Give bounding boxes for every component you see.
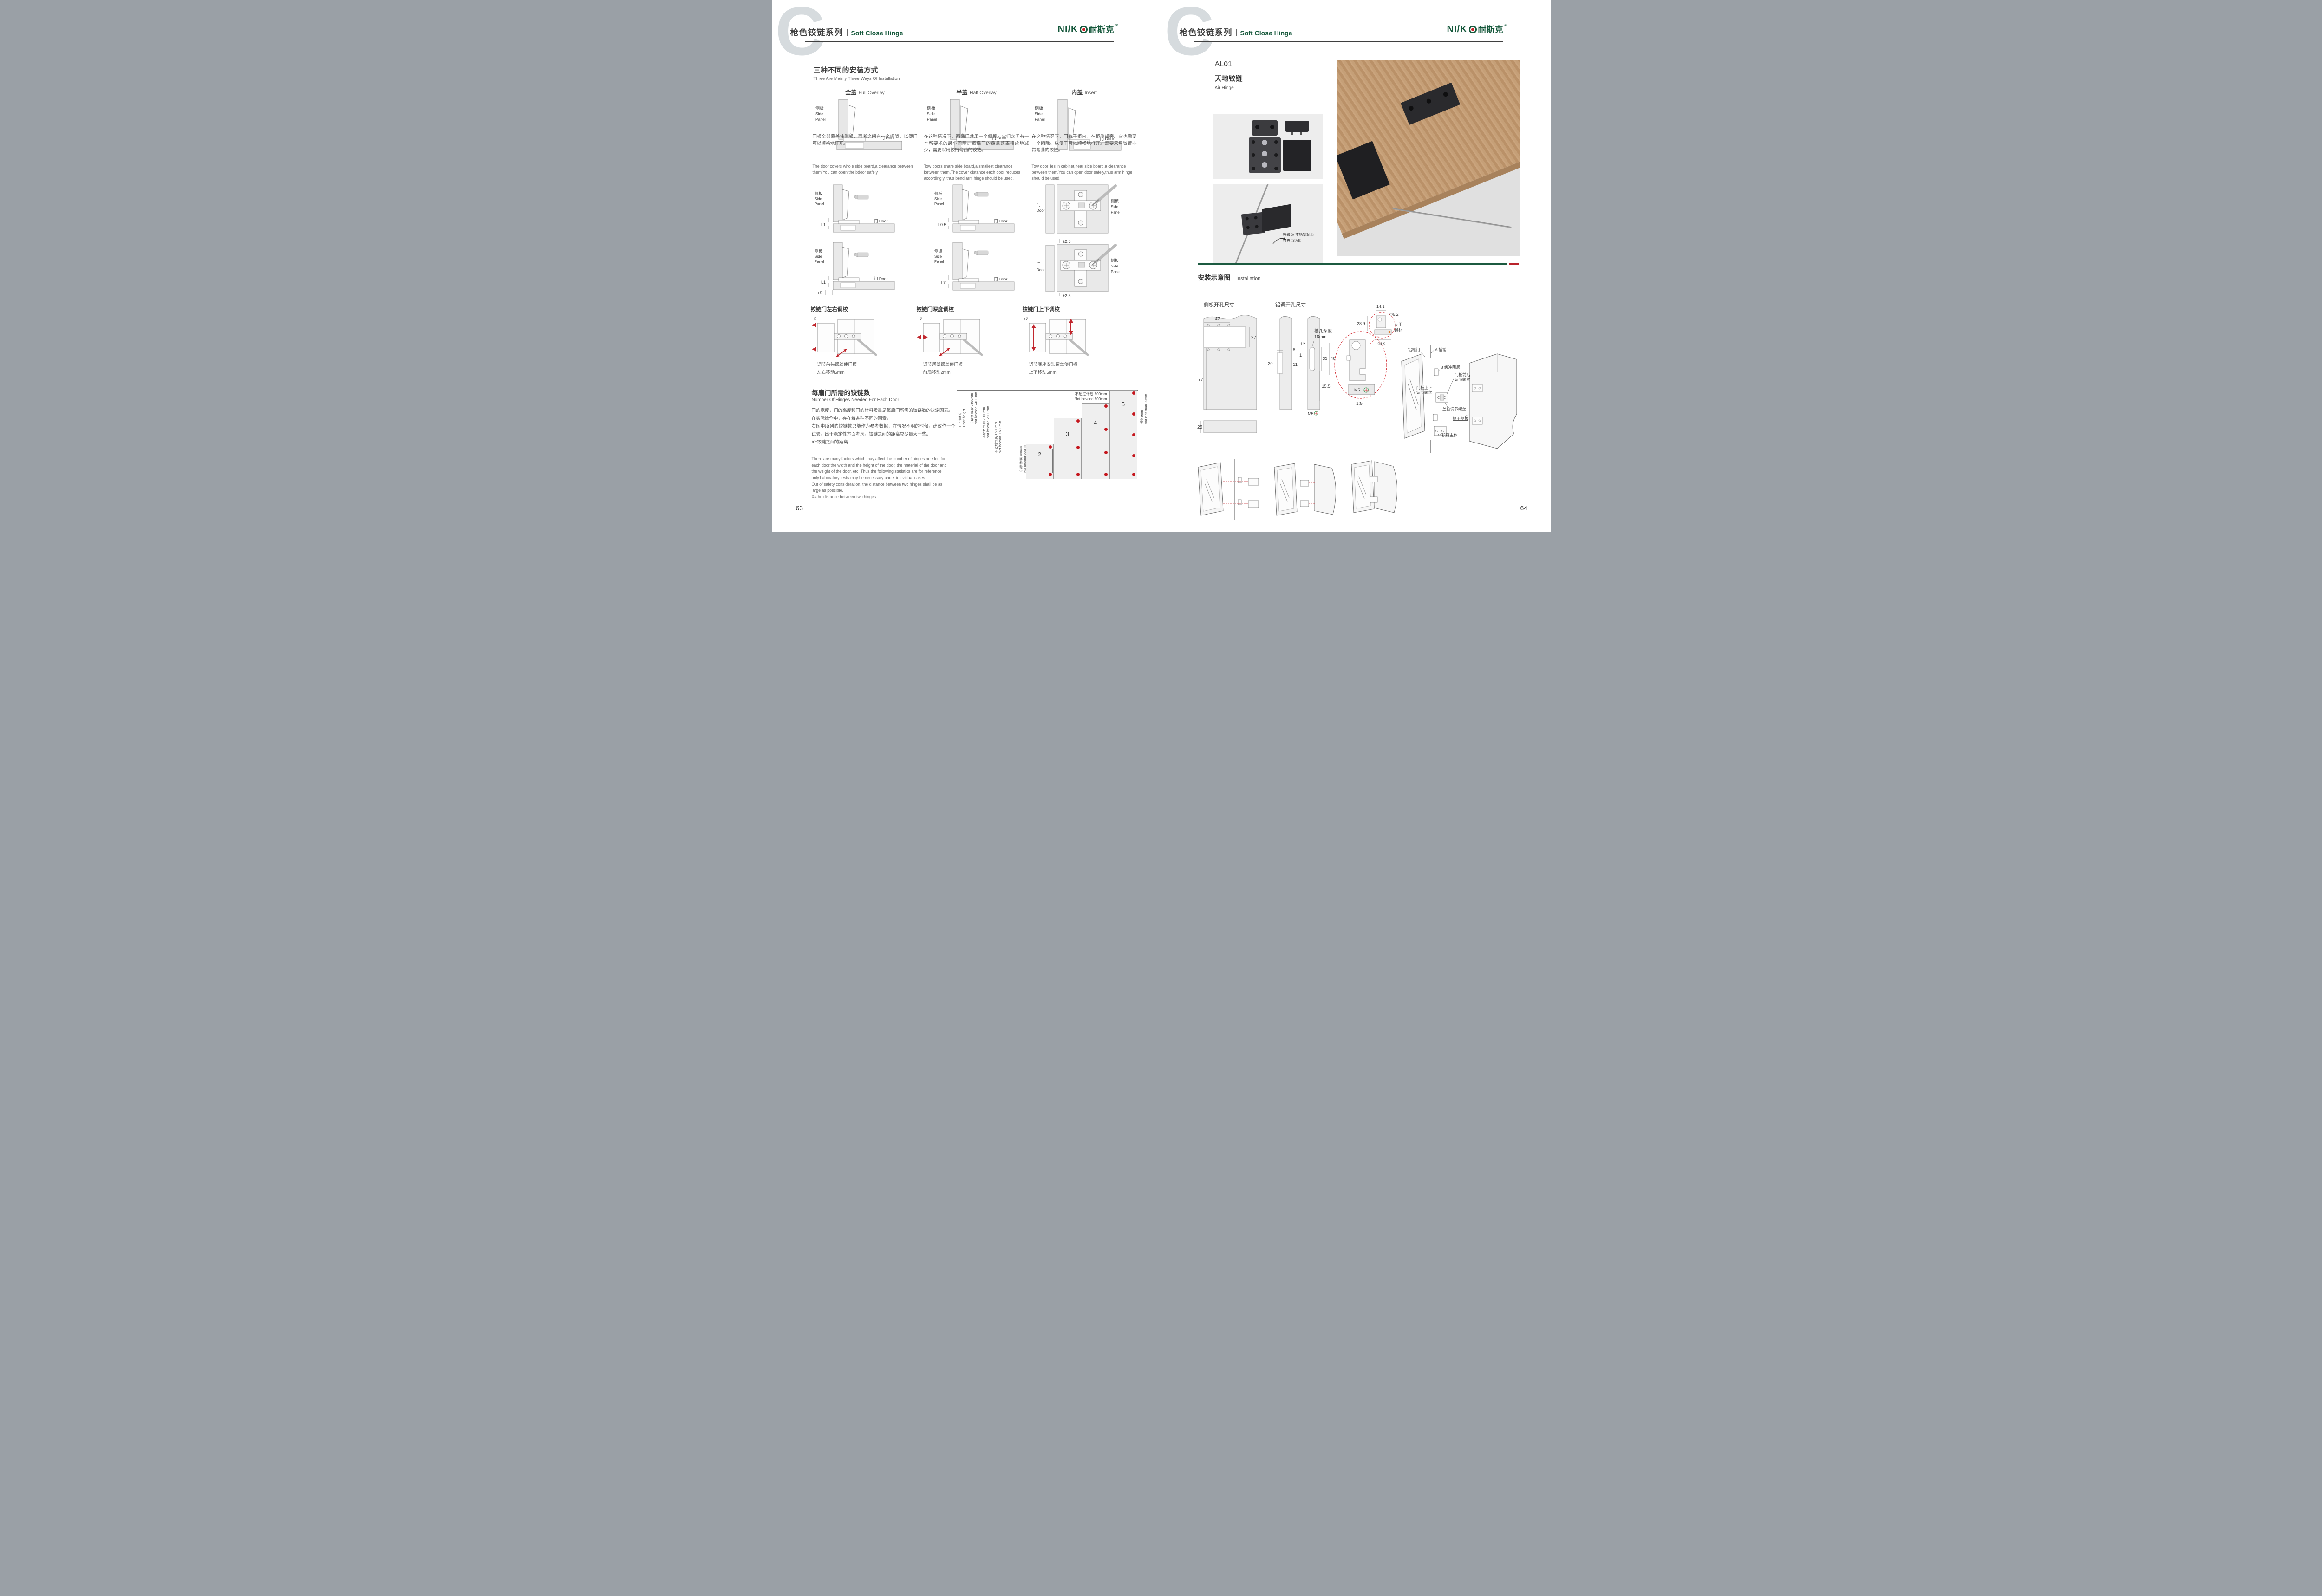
dim-plus5: +5 [817, 291, 822, 295]
adjust-caption-ud: 调节底座安装螺丝使门板上下移动5mm [1029, 361, 1078, 377]
hinge-cover-pad [1283, 140, 1311, 171]
cabinet-step3 [1375, 462, 1397, 513]
accent-bar-red [1509, 263, 1519, 265]
header-rule-left [805, 41, 1114, 42]
separator [799, 383, 1144, 383]
svg-text:Side: Side [815, 111, 823, 116]
svg-text:门 Door: 门 Door [874, 219, 887, 223]
dim-l1b: L1 [821, 280, 826, 285]
page-header-left: 枪色铰链系列Soft Close Hinge [790, 26, 903, 38]
dim-8: 8 [1293, 347, 1295, 352]
svg-text:侧板: 侧板 [927, 105, 935, 111]
dim-m5: M5 [1308, 411, 1314, 416]
svg-text:Panel: Panel [815, 260, 824, 264]
adjust-title-depth: 铰链门深度调校 [917, 306, 954, 313]
svg-text:Door: Door [1037, 268, 1045, 272]
cabinet-body [1469, 354, 1517, 449]
way-title-insert: 内盖 Insert [1031, 88, 1138, 97]
hinge-count-desc-cn: 门的宽度，门的高度和门的材料质量是每扇门所需的铰链数的决定因素。 在实际操作中，… [812, 407, 956, 446]
dim-11: 11 [1293, 362, 1298, 367]
cabinet-step2 [1314, 464, 1336, 515]
svg-text:门: 门 [1037, 202, 1041, 207]
svg-text:Side: Side [1111, 264, 1119, 268]
slot-depth-label: 槽孔深度 [1314, 328, 1332, 334]
svg-text:Panel: Panel [815, 202, 824, 206]
chart-bar-4: 4 [1082, 403, 1109, 479]
offset-diagram-l1: 侧板 Side Panel L1 门 Door [812, 181, 898, 238]
label-c-body: C 铰链主体 [1438, 433, 1458, 437]
label-front-back-1: 门板前后 [1455, 372, 1471, 377]
label-front-back-2: 调节螺丝 [1455, 377, 1471, 382]
svg-text:Side: Side [934, 197, 942, 201]
desc-en-full: The door covers whole side board,a clear… [813, 163, 918, 176]
red-arrow-icon [812, 347, 816, 352]
hinge-count-title: 每扇门所需的铰链数 [812, 388, 870, 397]
screw-icon [977, 251, 988, 255]
chart-door-height-label: 门的高度Door height [959, 409, 967, 427]
label-overlay-screw: 盖位调节螺丝 [1442, 407, 1467, 411]
svg-text:Side: Side [1111, 205, 1119, 209]
dim-l05: L0.5 [938, 222, 946, 227]
screw-icon [857, 253, 868, 257]
desc-cn-half: 在这种情况下，两扇门共用一个侧板。它们之间有一个所要求的最小间隙。每扇门的覆盖距… [924, 134, 1029, 154]
adjust-caption-depth: 调节尾部螺丝使门板前后移动2mm [923, 361, 963, 377]
side-panel-label: 侧板 [815, 105, 824, 111]
dim-77: 77 [1198, 377, 1204, 382]
svg-text:Panel: Panel [815, 117, 826, 122]
series-title-en: Soft Close Hinge [851, 29, 903, 37]
dim-33: 33 [1323, 356, 1328, 361]
alu-drill-label: 铝调开孔尺寸 [1275, 301, 1306, 308]
product-name-en: Air Hinge [1215, 85, 1234, 91]
range-label: ±2 [918, 317, 922, 321]
adjust-caption-lr: 调节前头螺丝使门板左右移动5mm [817, 361, 857, 377]
dim-47: 47 [1215, 317, 1220, 322]
svg-text:侧板: 侧板 [1035, 105, 1043, 111]
accent-bar-green [1198, 263, 1507, 265]
chart-level-2400: 不超过计划 2400mmNot bevond 2400mm [971, 392, 979, 424]
svg-text:侧板: 侧板 [934, 191, 943, 196]
svg-text:18mm: 18mm [1314, 334, 1326, 339]
way-name-en: Full Overlay [859, 90, 885, 96]
svg-text:侧板: 侧板 [934, 249, 943, 254]
product-code: AL01 [1215, 60, 1232, 69]
damper-part [1434, 369, 1438, 376]
range-label: ±2 [1024, 317, 1028, 321]
dim-62: Φ6.2 [1389, 312, 1399, 317]
svg-text:铝材: 铝材 [1394, 327, 1402, 332]
registered-mark: ® [1115, 23, 1118, 27]
separator-vertical [1025, 179, 1025, 296]
label-up-down-2: 调节螺丝 [1416, 390, 1433, 395]
page-header-right: 枪色铰链系列Soft Close Hinge [1180, 26, 1292, 38]
screw-icon [977, 192, 988, 196]
hinge-count-subtitle: Number Of Hinges Needed For Each Door [812, 397, 899, 403]
desc-en-half: Tow doors share side board,a smallest cl… [924, 163, 1029, 181]
offset-diagram-l1-plus5: 侧板 Side Panel L1 +5 门 Door [812, 239, 898, 297]
red-arrow-icon [917, 335, 921, 339]
special-alu-label: 专用 [1394, 322, 1402, 327]
svg-text:Side: Side [815, 254, 822, 259]
dim-289: 28.9 [1357, 321, 1365, 326]
installation-title: 安装示意图 Installation [1198, 273, 1261, 282]
red-arrow-icon [812, 323, 816, 327]
product-photo-parts [1213, 114, 1323, 179]
tech-drawing: 侧板开孔尺寸 铝调开孔尺寸 47 27 77 25 8 20 11 槽孔深度 1… [1197, 288, 1407, 455]
dim-27: 27 [1251, 335, 1257, 340]
desc-cn-full: 门板全部覆盖住侧板，两者之间有一个间隙，以便门可以顺畅地打开。 [813, 134, 918, 147]
hinge-count-chart: 门的高度Door height 不超过计划 2400mmNot bevond 2… [954, 388, 1154, 488]
label-alu-door: 铝框门 [1408, 347, 1420, 352]
logo-cn: 耐斯克 [1089, 23, 1114, 35]
svg-text:Side: Side [934, 254, 942, 259]
range-label: ±5 [812, 317, 816, 321]
nisko-logo: NI/K 耐斯克 ® [1058, 23, 1118, 35]
svg-text:Door: Door [1037, 208, 1045, 213]
screw-icon [857, 195, 868, 199]
dim-20: 20 [1268, 361, 1273, 366]
svg-text:Panel: Panel [934, 260, 944, 264]
svg-text:Side: Side [927, 111, 935, 116]
adjust-title-lr: 铰链门左右调校 [811, 306, 848, 313]
svg-text:门 Door: 门 Door [994, 277, 1007, 281]
dim-plus-minus-25-top: ±2.5 [1063, 239, 1070, 244]
desc-en-insert: Tow door lies in cabinet,near side board… [1032, 163, 1137, 181]
page-number-right: 64 [1520, 504, 1528, 512]
svg-text:门 Door: 门 Door [994, 219, 1007, 223]
adjust-title-ud: 铰链门上下调校 [1023, 306, 1060, 313]
dim-141: 14.1 [1376, 304, 1385, 309]
way-name-cn: 内盖 [1071, 89, 1083, 96]
chart-width-label: 不超过计划 600mmNot bevond 600mm [1041, 392, 1107, 402]
photo-note: 升级版·不锈钢轴心 可自由拆卸 [1283, 232, 1319, 244]
svg-text:Side: Side [1035, 111, 1043, 116]
svg-text:Panel: Panel [1035, 117, 1045, 122]
nisko-logo: NI/K 耐斯克 ® [1447, 23, 1507, 35]
offset-diagram-l7: 侧板 Side Panel L7 门 Door [932, 239, 1018, 295]
svg-text:Side: Side [815, 197, 822, 201]
dim-12: 12 [1300, 342, 1305, 347]
way-name-en: Half Overlay [970, 90, 997, 96]
label-up-down-1: 门板上下 [1416, 385, 1433, 390]
way-name-en: Insert [1085, 90, 1097, 96]
logo-o-icon [1469, 26, 1477, 33]
svg-text:Panel: Panel [934, 202, 944, 206]
hinge-flap-plate [1262, 204, 1291, 232]
way-name-cn: 半盖 [956, 89, 967, 96]
hinge-arm-shape [960, 106, 968, 137]
product-name-cn: 天地铰链 [1215, 73, 1243, 83]
hinge-top-flap [1252, 120, 1277, 136]
label-b-damper: B 缓冲阻尼 [1441, 365, 1460, 370]
hinge-base-plate [1249, 137, 1280, 173]
install-ways-title: 三种不同的安装方式 [814, 65, 879, 75]
dim-m5-detail: M5 [1354, 388, 1360, 392]
chart-min-label: 至少 90mmNot less than 90mm [1141, 394, 1148, 424]
logo-latin: NI/K [1058, 24, 1078, 35]
catalog-spread: C 枪色铰链系列Soft Close Hinge NI/K 耐斯克 ® 三种不同… [772, 0, 1551, 532]
offset-diagram-l05: 侧板 Side Panel L0.5 门 Door [932, 181, 1018, 238]
chart-level-1600: 不超过计划 1600mmNot bevond 1600mm [995, 421, 1003, 453]
label-cabinet-side: 柜子侧板 [1453, 416, 1469, 421]
svg-text:门 Door: 门 Door [874, 276, 887, 281]
page-number-left: 63 [796, 504, 803, 512]
separator [799, 301, 1144, 301]
svg-text:Panel: Panel [1111, 210, 1121, 215]
adjust-diagram-lr: ±5 [811, 315, 892, 358]
dim-plus-minus-25-bottom: ±2.5 [1063, 293, 1070, 298]
way-title-half-overlay: 半盖 Half Overlay [923, 88, 1030, 97]
adjust-diagram-ud: ±2 [1023, 315, 1104, 358]
hinge-count-desc-en: There are many factors which may affect … [812, 456, 951, 500]
dim-l7: L7 [941, 280, 946, 285]
series-title-cn: 枪色铰链系列 [790, 28, 843, 37]
plate-diagram-top: 门 Door 侧板 Side Panel [1036, 182, 1131, 237]
way-title-full-overlay: 全盖 Full Overlay [812, 88, 919, 97]
svg-text:Panel: Panel [1111, 270, 1121, 274]
hinge-arm-shape [848, 105, 855, 137]
side-panel-drill-label: 侧板开孔尺寸 [1204, 301, 1234, 308]
svg-text:侧板: 侧板 [815, 249, 823, 254]
svg-text:侧板: 侧板 [1111, 258, 1119, 263]
plate-diagram-bottom: ±2.5 门 Door 侧板 Side Panel ±2.5 [1036, 238, 1131, 298]
way-name-cn: 全盖 [845, 89, 856, 96]
assembly-sequence [1194, 457, 1418, 522]
product-photo-board [1337, 60, 1520, 256]
label-a-pin: A 插销 [1435, 347, 1447, 352]
desc-cn-insert: 在这种情况下，门位于柜内，在柜侧板旁。它也需要一个间隙。以便于可以顺畅地打开。需… [1032, 134, 1137, 154]
install-ways-subtitle: Three Are Mainly Three Ways Of Installat… [814, 76, 900, 81]
svg-text:门: 门 [1037, 262, 1041, 267]
header-rule-right [1194, 41, 1503, 42]
chart-level-2000: 不超过计划 2000mmNot bevond 2000mm [983, 406, 991, 438]
dim-l1: L1 [821, 222, 826, 227]
svg-text:Panel: Panel [927, 117, 937, 122]
hinge-bracket [1241, 212, 1265, 235]
dim-155: 15.5 [1322, 384, 1331, 389]
logo-o-icon [1080, 26, 1088, 33]
adjust-diagram-depth: ±2 [917, 315, 998, 358]
svg-text:侧板: 侧板 [1111, 199, 1119, 203]
dim-25: 25 [1197, 425, 1203, 430]
separator [799, 175, 1144, 175]
dim-1: 1 [1299, 353, 1302, 358]
exploded-view: 铝框门 A 插销 B 缓冲阻尼 门板前后 调节螺丝 门板上下 调节螺丝 盖位调节… [1397, 345, 1537, 456]
hinge-clip-part [1285, 121, 1309, 132]
scale-label: 1:5 [1356, 401, 1363, 406]
svg-text:侧板: 侧板 [815, 191, 823, 196]
product-photo-shaft: 升级版·不锈钢轴心 可自由拆卸 [1213, 184, 1323, 265]
dim-349: 34.9 [1377, 342, 1386, 346]
divider [847, 29, 848, 36]
steel-rod [1392, 208, 1511, 228]
